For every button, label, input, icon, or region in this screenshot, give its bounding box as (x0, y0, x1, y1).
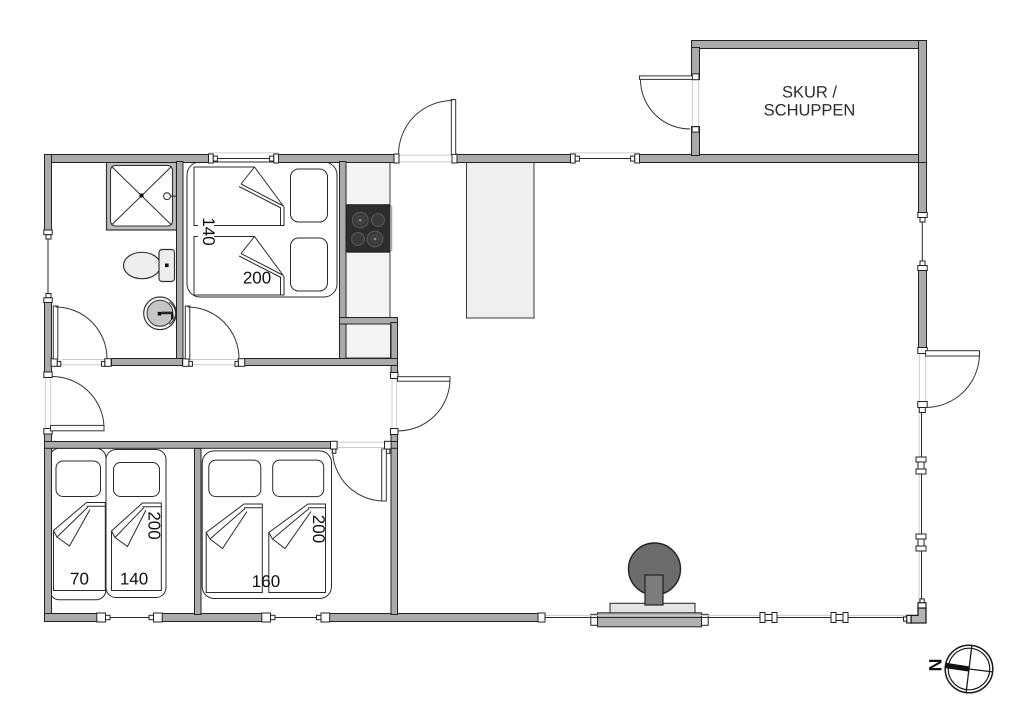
svg-text:140: 140 (199, 217, 218, 245)
svg-text:140: 140 (120, 569, 148, 588)
svg-text:N: N (926, 659, 946, 672)
svg-text:160: 160 (252, 572, 280, 591)
svg-text:200: 200 (243, 268, 271, 287)
svg-text:SKUR /: SKUR / (782, 83, 837, 101)
svg-text:200: 200 (145, 511, 164, 539)
svg-text:200: 200 (309, 515, 328, 543)
svg-text:SCHUPPEN: SCHUPPEN (764, 101, 856, 119)
svg-text:70: 70 (70, 569, 89, 588)
